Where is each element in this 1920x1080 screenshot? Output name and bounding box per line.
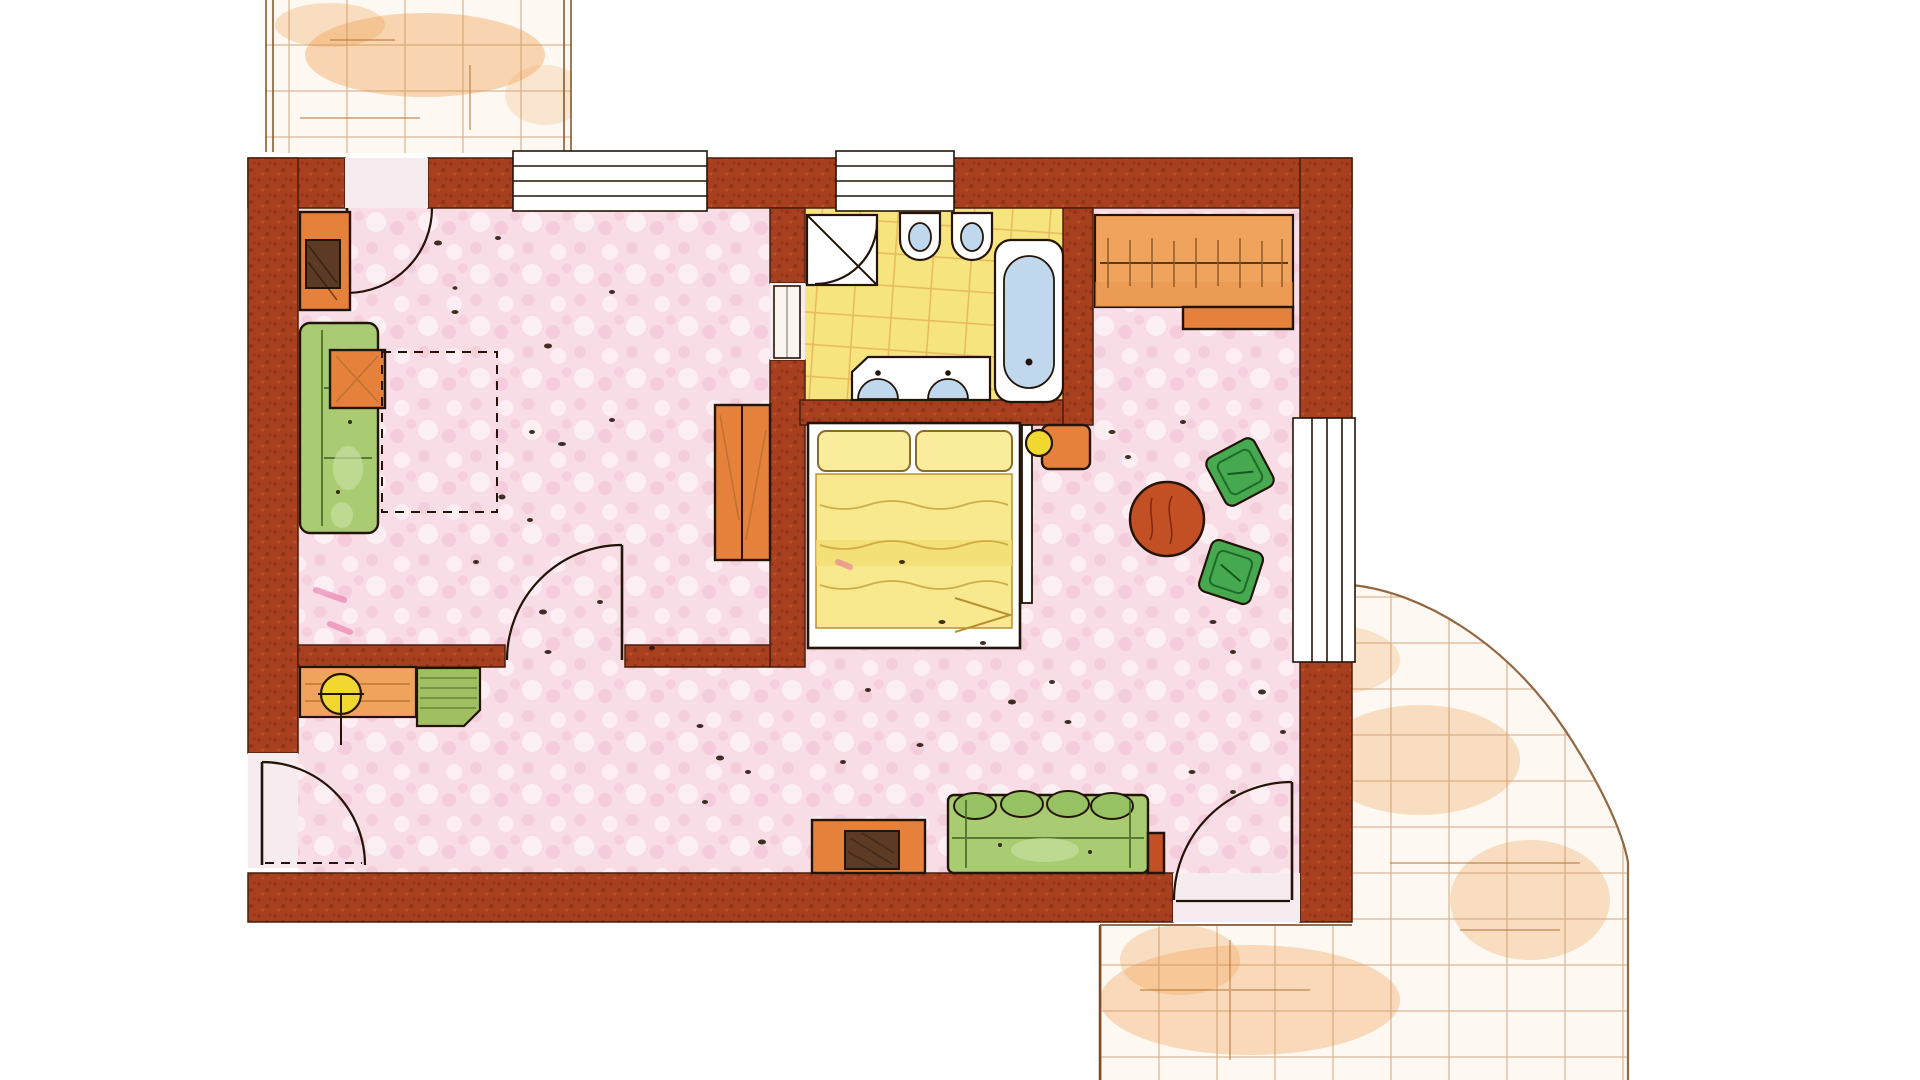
window-top-left bbox=[513, 151, 707, 211]
window-right bbox=[1293, 418, 1355, 662]
wall-bathroom-left-upper bbox=[770, 208, 805, 283]
wall-hung-toilet bbox=[900, 213, 940, 260]
wall-hallway-left bbox=[298, 645, 505, 667]
wall-bottom bbox=[248, 873, 1173, 922]
sofa-sitting-area bbox=[948, 791, 1148, 873]
pillow-left bbox=[818, 431, 910, 471]
closet-with-rail bbox=[1095, 215, 1293, 307]
wall-hallway-right bbox=[625, 645, 770, 667]
wardrobe-living-room bbox=[715, 405, 770, 560]
media-cabinet bbox=[300, 212, 350, 310]
bench-desk bbox=[417, 668, 480, 726]
wall-top-segment-2 bbox=[428, 158, 515, 208]
wall-right-upper bbox=[1300, 158, 1352, 420]
wall-bathroom-right bbox=[1063, 208, 1093, 425]
tv-cabinet bbox=[812, 820, 925, 873]
wall-top-segment-3 bbox=[705, 158, 838, 208]
corner-shower bbox=[807, 215, 877, 285]
floor-plan-drawing bbox=[0, 0, 1920, 1080]
window-top-center bbox=[836, 151, 954, 211]
side-table bbox=[1148, 833, 1164, 873]
wall-left bbox=[248, 158, 298, 753]
wall-top-segment-4 bbox=[952, 158, 1352, 208]
bedside-lamp bbox=[1026, 430, 1052, 456]
bathtub bbox=[995, 240, 1063, 402]
door-bathroom bbox=[770, 283, 805, 360]
pillow-right bbox=[916, 431, 1012, 471]
closet-bench bbox=[1183, 307, 1293, 329]
vanity-double-sink bbox=[852, 357, 990, 400]
wall-right-lower bbox=[1300, 660, 1352, 922]
terrace-top-texture bbox=[265, 0, 585, 153]
double-bed bbox=[808, 423, 1020, 648]
wall-hung-bidet bbox=[952, 213, 992, 260]
terrace-top bbox=[265, 0, 585, 153]
wall-bathroom-bottom bbox=[800, 400, 1063, 425]
round-table bbox=[1130, 482, 1204, 556]
floor-plan-canvas bbox=[0, 0, 1920, 1080]
coffee-table bbox=[330, 350, 385, 408]
